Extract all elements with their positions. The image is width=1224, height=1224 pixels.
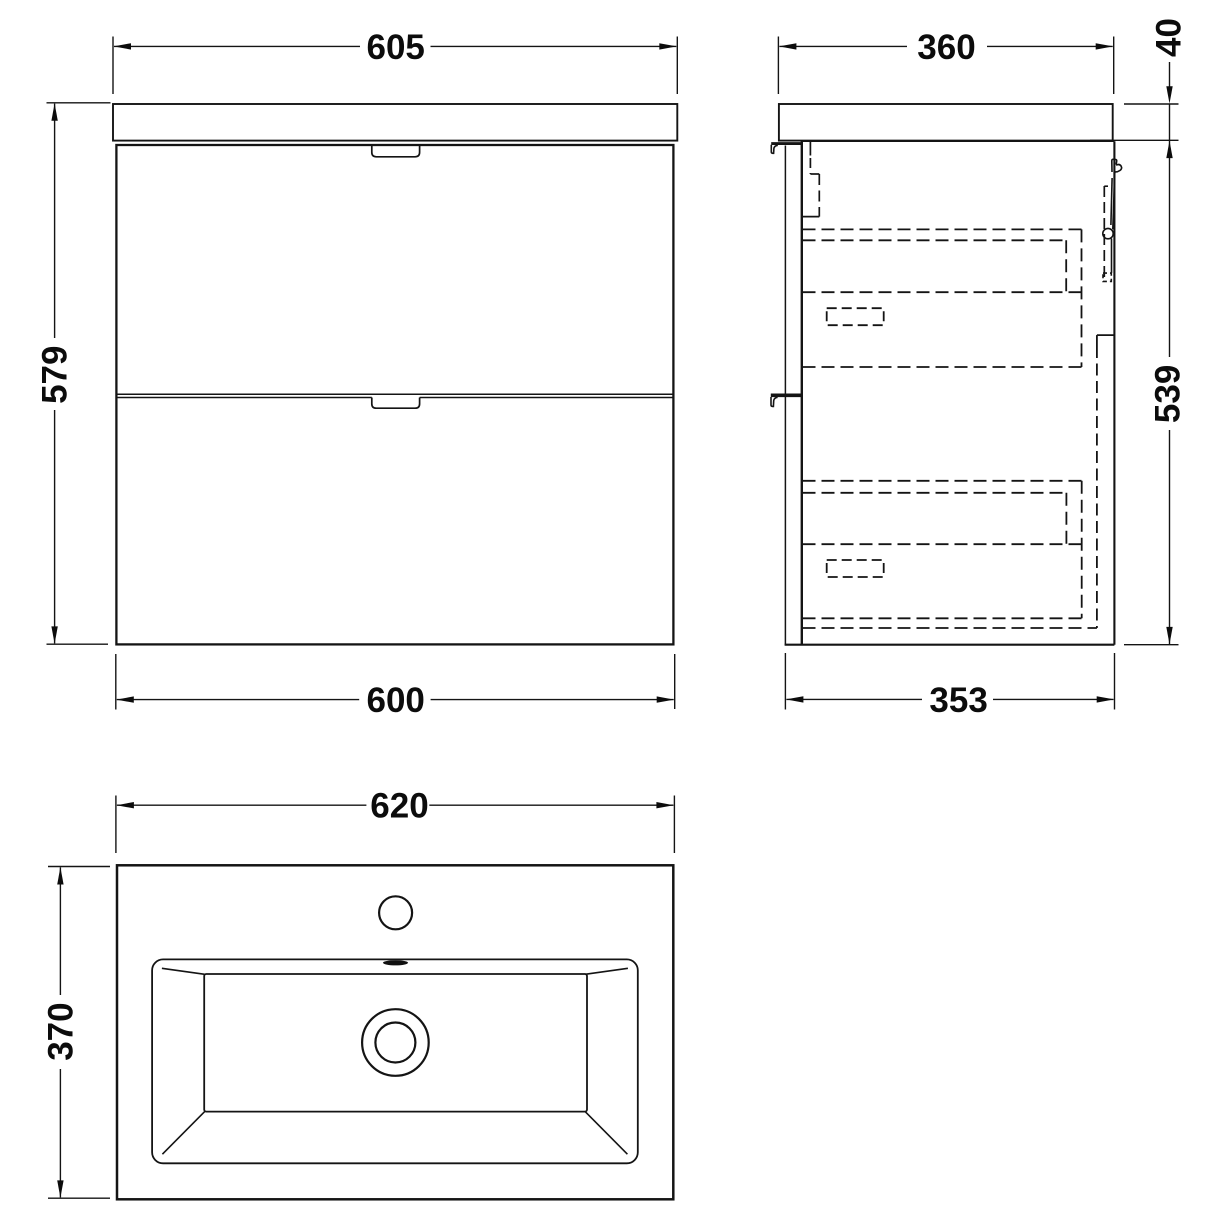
svg-text:353: 353 <box>929 681 987 720</box>
svg-text:620: 620 <box>370 787 428 826</box>
svg-text:40: 40 <box>1150 18 1189 57</box>
svg-text:579: 579 <box>36 345 75 403</box>
svg-text:539: 539 <box>1149 365 1188 423</box>
svg-text:360: 360 <box>917 28 975 67</box>
svg-text:370: 370 <box>41 1002 80 1060</box>
svg-text:600: 600 <box>366 681 424 720</box>
svg-text:605: 605 <box>366 28 424 67</box>
